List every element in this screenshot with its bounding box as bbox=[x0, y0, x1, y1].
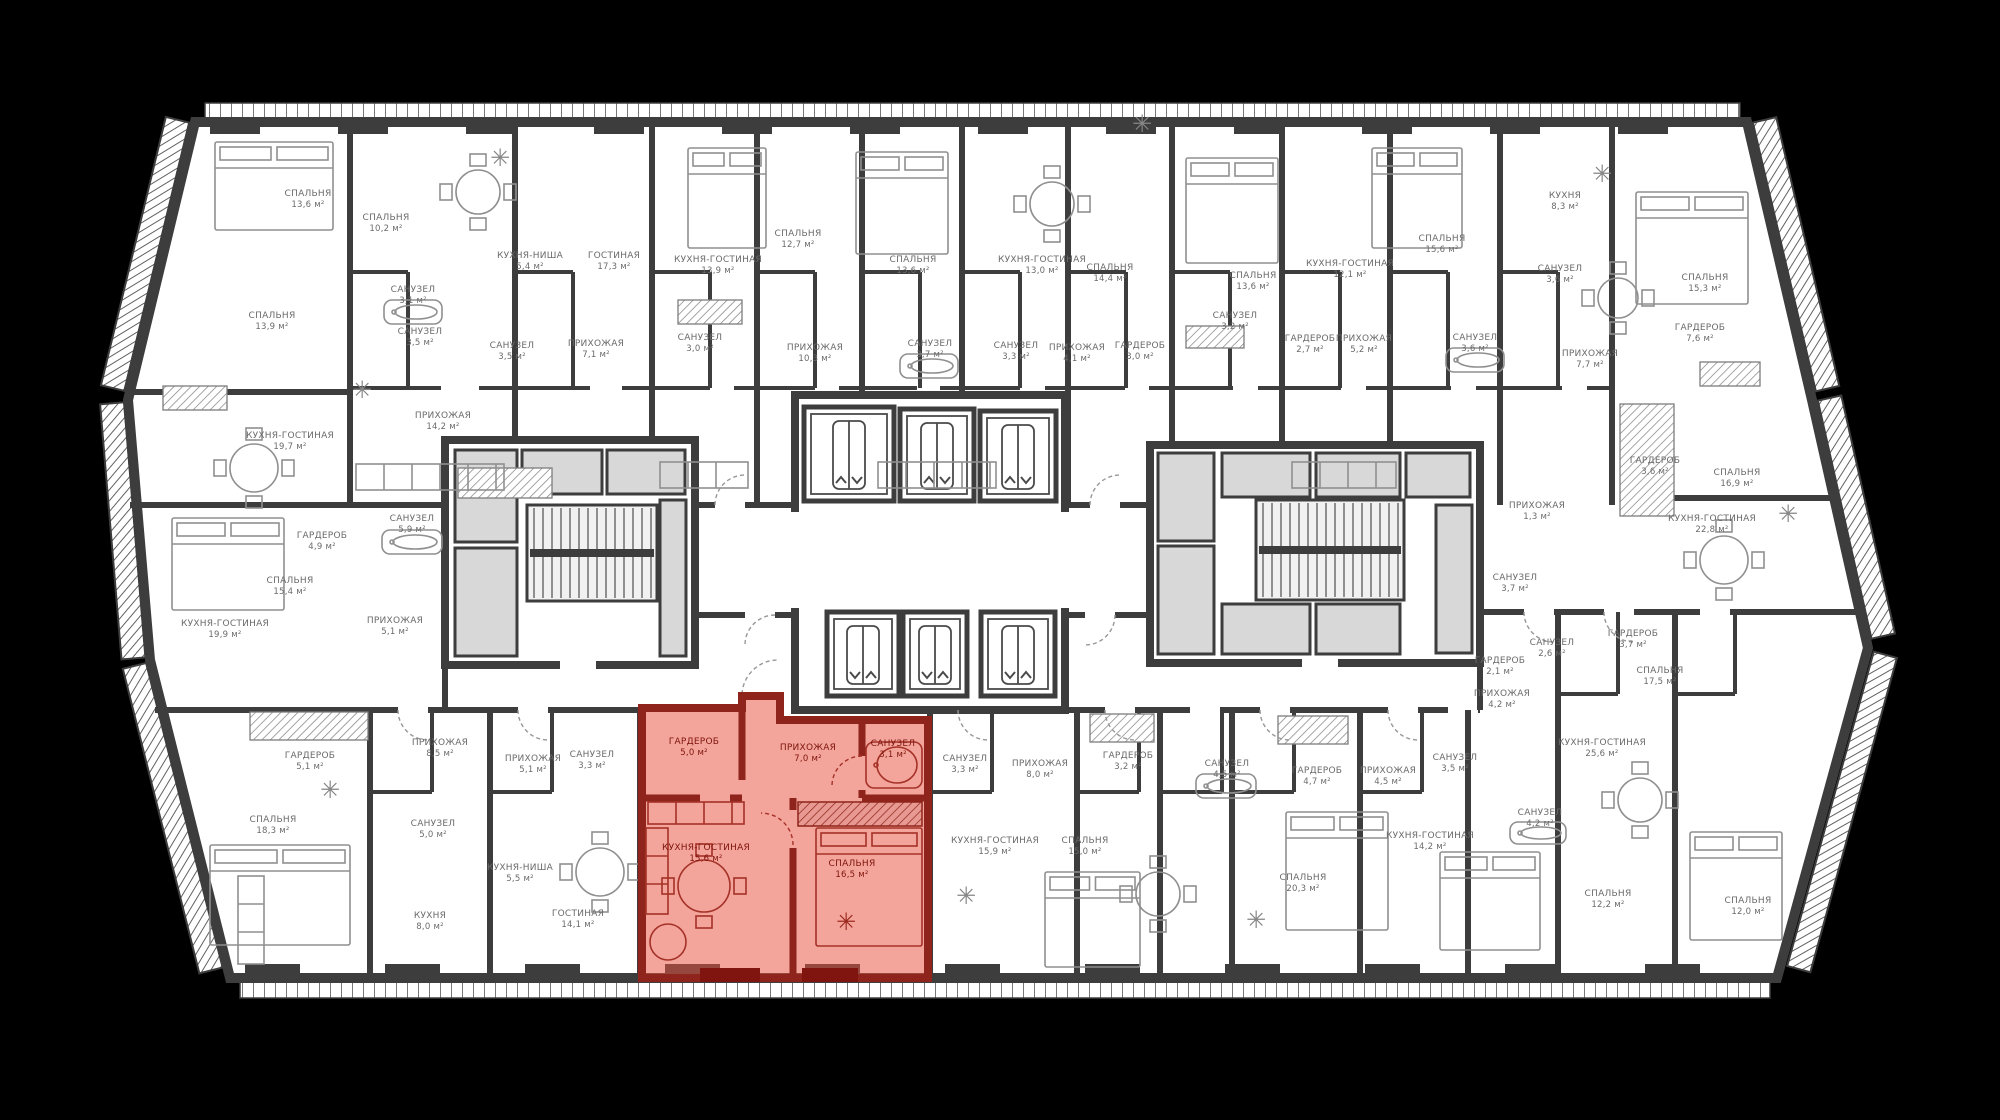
room-label: КУХНЯ8,3 м² bbox=[1549, 191, 1581, 212]
shaft bbox=[455, 548, 517, 656]
shaft bbox=[1222, 604, 1310, 654]
room-label: СПАЛЬНЯ13,6 м² bbox=[1230, 271, 1277, 292]
plant-icon: ✳ bbox=[836, 908, 856, 936]
plant-icon: ✳ bbox=[1246, 906, 1266, 934]
plant-icon: ✳ bbox=[320, 776, 340, 804]
room-label: СПАЛЬНЯ12,2 м² bbox=[1585, 889, 1632, 910]
shaft bbox=[1158, 453, 1214, 541]
elevator bbox=[903, 612, 967, 696]
highlighted-balcony-door-pier bbox=[700, 968, 760, 982]
room-label: СПАЛЬНЯ20,3 м² bbox=[1280, 873, 1327, 894]
room-label: СПАЛЬНЯ15,3 м² bbox=[1682, 273, 1729, 294]
room-label: СПАЛЬНЯ14,4 м² bbox=[1087, 263, 1134, 284]
stair-core-right-door bbox=[1302, 657, 1338, 667]
room-label: СПАЛЬНЯ13,6 м² bbox=[285, 189, 332, 210]
highlighted-wardrobe-hatch bbox=[798, 802, 922, 826]
elevator-lobby-opening-east bbox=[1057, 512, 1073, 608]
room-label: КУХНЯ8,0 м² bbox=[414, 911, 446, 932]
shaft bbox=[1158, 546, 1214, 654]
wardrobe-hatch bbox=[250, 712, 368, 740]
shaft bbox=[1316, 453, 1400, 497]
highlighted-room-label: СПАЛЬНЯ16,5 м² bbox=[829, 859, 876, 880]
room-label: СПАЛЬНЯ17,5 м² bbox=[1637, 666, 1684, 687]
wardrobe-hatch bbox=[163, 386, 227, 410]
building-cores bbox=[445, 395, 1480, 710]
shaft bbox=[1406, 453, 1470, 497]
shaft bbox=[660, 500, 686, 656]
highlighted-balcony-door-pier bbox=[802, 968, 858, 982]
stair-core-left-door bbox=[560, 659, 596, 669]
highlighted-apartment[interactable]: ✳ ГАРДЕРОБ5,0 м²ПРИХОЖАЯ7,0 м²САНУЗЕЛ3,1… bbox=[642, 696, 928, 982]
wardrobe-hatch bbox=[1090, 714, 1154, 742]
elevator-lobby-opening-west bbox=[787, 512, 803, 608]
room-label: СПАЛЬНЯ16,9 м² bbox=[1714, 468, 1761, 489]
room-label: СПАЛЬНЯ13,6 м² bbox=[890, 255, 937, 276]
wardrobe-hatch bbox=[458, 468, 552, 498]
shaft bbox=[1316, 604, 1400, 654]
shaft bbox=[1222, 453, 1310, 497]
room-label: СПАЛЬНЯ12,7 м² bbox=[775, 229, 822, 250]
room-label: СПАЛЬНЯ15,4 м² bbox=[267, 576, 314, 597]
elevator bbox=[981, 612, 1055, 696]
plant-icon: ✳ bbox=[1132, 110, 1152, 138]
room-label: СПАЛЬНЯ15,6 м² bbox=[1419, 234, 1466, 255]
plant-icon: ✳ bbox=[1778, 500, 1798, 528]
bottom-facade-strip bbox=[240, 982, 1770, 998]
elevator bbox=[827, 612, 899, 696]
floor-plan-svg: ✳✳✳✳✳✳✳✳ СПАЛЬНЯ13,6 м²СПАЛЬНЯ10,2 м²КУХ… bbox=[0, 0, 2000, 1120]
room-label: СПАЛЬНЯ15,0 м² bbox=[1062, 836, 1109, 857]
room-label: СПАЛЬНЯ12,0 м² bbox=[1725, 896, 1772, 917]
elevator bbox=[804, 407, 894, 501]
wardrobe-hatch bbox=[1700, 362, 1760, 386]
plant-icon: ✳ bbox=[1592, 160, 1612, 188]
wardrobe-hatch bbox=[678, 300, 742, 324]
shaft bbox=[1436, 505, 1472, 653]
room-label: СПАЛЬНЯ18,3 м² bbox=[250, 815, 297, 836]
plant-icon: ✳ bbox=[352, 376, 372, 404]
plant-icon: ✳ bbox=[490, 144, 510, 172]
room-label: СПАЛЬНЯ10,2 м² bbox=[363, 213, 410, 234]
room-label: СПАЛЬНЯ13,9 м² bbox=[249, 311, 296, 332]
plant-icon: ✳ bbox=[956, 882, 976, 910]
floor-plan-page: ✳✳✳✳✳✳✳✳ СПАЛЬНЯ13,6 м²СПАЛЬНЯ10,2 м²КУХ… bbox=[0, 0, 2000, 1120]
